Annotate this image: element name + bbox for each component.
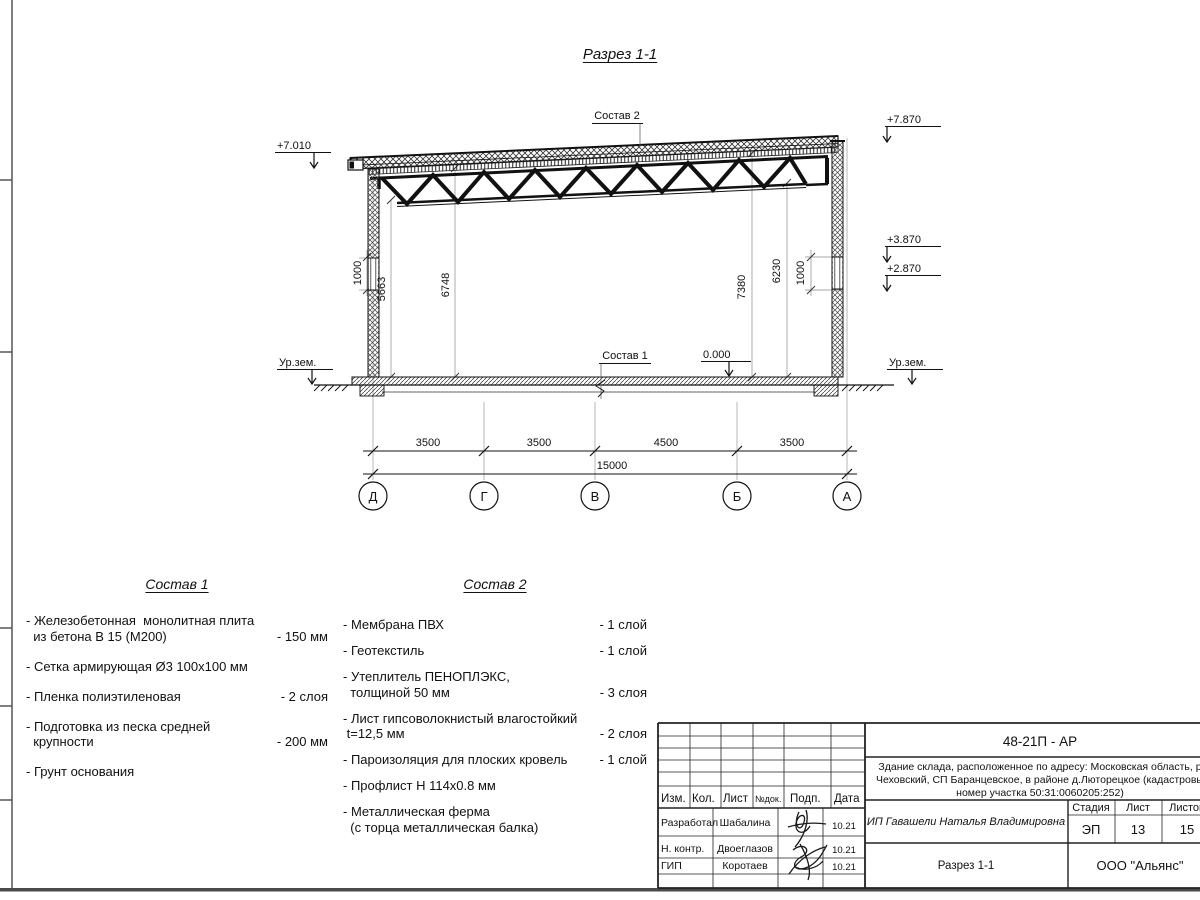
- sostav1-heading: Состав 1: [26, 576, 328, 593]
- right-wall: [830, 141, 845, 377]
- layer-name: - Лист гипсоволокнистый влагостойкий t=1…: [343, 711, 577, 743]
- layer-name: - Металлическая ферма (с торца металличе…: [343, 804, 538, 836]
- elevation-zero: 0.000: [703, 349, 731, 361]
- list-item: - Пленка полиэтиленовая - 2 слоя: [26, 689, 328, 705]
- list-item: - Железобетонная монолитная плита из бет…: [26, 613, 328, 645]
- layer-name: - Пленка полиэтиленовая: [26, 689, 181, 705]
- layer-value: - 3 слоя: [594, 685, 647, 701]
- doc-code: 48-21П - АР: [1003, 734, 1077, 749]
- page-title: Разрез 1-1: [520, 46, 720, 63]
- signature-1: [788, 810, 826, 847]
- client-name: ИП Гавашели Наталья Владимировна: [867, 816, 1065, 828]
- description-line-2: Чеховский, СП Баранцевское, в районе д.Л…: [876, 774, 1200, 786]
- col-kol: Кол.: [692, 793, 715, 805]
- elevation-left-top: +7.010: [277, 140, 311, 152]
- row-name-0: Шабалина: [720, 817, 771, 829]
- dim-total: 15000: [597, 460, 628, 472]
- sostav2-ref-label: Состав 2: [594, 110, 640, 122]
- sostav2-list: Состав 2 - Мембрана ПВХ - 1 слой - Геоте…: [343, 576, 647, 846]
- layer-value: - 2 слоя: [275, 689, 328, 705]
- dim-6230: 6230: [771, 259, 783, 283]
- dim-span-2: 3500: [527, 437, 551, 449]
- layer-name: - Сетка армирующая Ø3 100х100 мм: [26, 659, 248, 675]
- row-name-2: Коротаев: [722, 860, 768, 872]
- dimension-ticks: [363, 149, 815, 381]
- dim-span-3: 4500: [654, 437, 678, 449]
- row-name-1: Двоеглазов: [717, 843, 773, 855]
- sostav1-list: Состав 1 - Железобетонная монолитная пли…: [26, 576, 328, 794]
- col-data: Дата: [834, 793, 860, 805]
- row-date-2: 10.21: [832, 862, 856, 873]
- layer-value: - 1 слой: [593, 643, 647, 659]
- sheet-value: 13: [1131, 822, 1145, 837]
- ground-label-right: Ур.зем.: [889, 357, 926, 369]
- dim-1000-left: 1000: [352, 261, 364, 285]
- axis-label-d: Д: [369, 489, 378, 504]
- drawing-sheet: 1000 5663 6748 7380 6230 1000 +7.010 Ур.…: [0, 0, 1200, 900]
- elevation-right-top: +7.870: [887, 114, 921, 126]
- floor-slab: [314, 377, 894, 396]
- list-item: - Сетка армирующая Ø3 100х100 мм: [26, 659, 328, 675]
- ground-label-left: Ур.зем.: [279, 357, 316, 369]
- row-role-0: Разработал: [661, 817, 718, 829]
- signature-2: [789, 844, 827, 880]
- sheet-title: Разрез 1-1: [938, 860, 994, 872]
- dim-6748: 6748: [440, 273, 452, 297]
- col-izm: Изм.: [661, 793, 686, 805]
- layer-value: - 1 слой: [593, 752, 647, 768]
- foundation-left: [360, 385, 384, 396]
- stage-value: ЭП: [1082, 822, 1101, 837]
- dim-span-4: 3500: [780, 437, 804, 449]
- sheets-value: 15: [1180, 822, 1194, 837]
- dim-1000-right: 1000: [795, 261, 807, 285]
- title-block: Изм. Кол. Лист №док. Подп. Дата Разработ…: [658, 723, 1200, 888]
- layer-name: - Подготовка из песка средней крупности: [26, 719, 210, 751]
- layer-name: - Профлист Н 114х0.8 мм: [343, 778, 496, 794]
- layer-value: - 2 слоя: [594, 726, 647, 742]
- list-item: - Грунт основания: [26, 764, 328, 780]
- sheets-label: Листов: [1169, 802, 1200, 814]
- axis-label-g: Г: [480, 489, 487, 504]
- axis-label-a: А: [843, 489, 852, 504]
- layer-name: - Пароизоляция для плоских кровель: [343, 752, 567, 768]
- col-ndok: №док.: [755, 794, 781, 804]
- left-wall: [368, 169, 379, 377]
- list-item: - Утеплитель ПЕНОПЛЭКС, толщиной 50 мм -…: [343, 669, 647, 701]
- row-role-2: ГИП: [661, 860, 682, 872]
- layer-name: - Железобетонная монолитная плита из бет…: [26, 613, 254, 645]
- list-item: - Подготовка из песка средней крупности …: [26, 719, 328, 751]
- axis-label-b: Б: [733, 489, 742, 504]
- dimension-chain: 3500 3500 4500 3500 15000: [363, 437, 857, 479]
- elevation-right-upper: +3.870: [887, 234, 921, 246]
- list-item: - Пароизоляция для плоских кровель - 1 с…: [343, 752, 647, 768]
- description-line-3: номер участка 50:31:0060205:252): [956, 787, 1124, 799]
- col-list: Лист: [723, 793, 749, 805]
- axis-label-v: В: [591, 489, 600, 504]
- sostav1-ref-label: Состав 1: [602, 350, 648, 362]
- vertical-dimensions: 1000 5663 6748 7380 6230 1000: [352, 259, 807, 301]
- row-date-0: 10.21: [832, 821, 856, 832]
- dim-7380: 7380: [736, 275, 748, 299]
- list-item: - Профлист Н 114х0.8 мм: [343, 778, 647, 794]
- layer-name: - Геотекстиль: [343, 643, 424, 659]
- layer-name: - Мембрана ПВХ: [343, 617, 444, 633]
- sheet-label: Лист: [1126, 802, 1150, 814]
- col-podp: Подп.: [790, 793, 821, 805]
- layer-name: - Утеплитель ПЕНОПЛЭКС, толщиной 50 мм: [343, 669, 510, 701]
- right-wall-window: [833, 257, 842, 289]
- layer-value: - 200 мм: [271, 734, 328, 750]
- list-item: - Металлическая ферма (с торца металличе…: [343, 804, 647, 836]
- company-name: ООО "Альянс": [1097, 858, 1184, 873]
- sostav2-heading: Состав 2: [343, 576, 647, 593]
- elevation-right-lower: +2.870: [887, 263, 921, 275]
- list-item: - Геотекстиль - 1 слой: [343, 643, 647, 659]
- row-role-1: Н. контр.: [661, 843, 704, 855]
- layer-name: - Грунт основания: [26, 764, 134, 780]
- list-item: - Мембрана ПВХ - 1 слой: [343, 617, 647, 633]
- layer-value: - 150 мм: [271, 629, 328, 645]
- axis-bubbles: Д Г В Б А: [359, 482, 861, 510]
- foundation-right: [814, 385, 838, 396]
- layer-value: - 1 слой: [593, 617, 647, 633]
- description-line-1: Здание склада, расположенное по адресу: …: [878, 761, 1200, 773]
- dim-5663: 5663: [376, 277, 388, 301]
- dim-span-1: 3500: [416, 437, 440, 449]
- list-item: - Лист гипсоволокнистый влагостойкий t=1…: [343, 711, 647, 743]
- stage-label: Стадия: [1072, 802, 1110, 814]
- row-date-1: 10.21: [832, 845, 856, 856]
